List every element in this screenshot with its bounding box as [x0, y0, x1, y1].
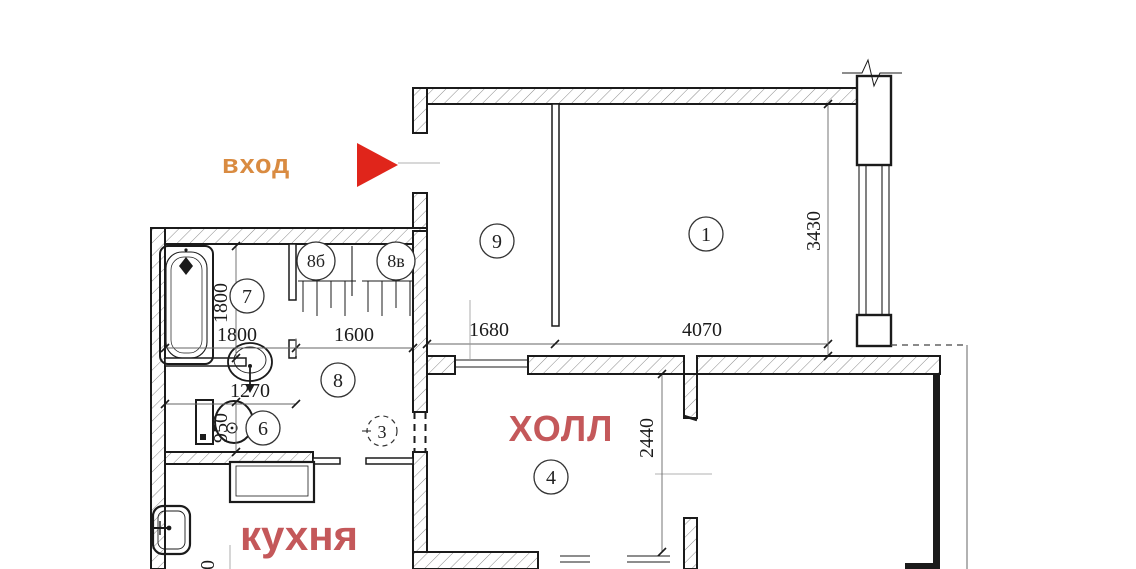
wall-hall-top-stub: [427, 356, 455, 374]
partition-room9-room1: [552, 104, 559, 326]
floor-plan-page: 1800 1600 1270 1800 950 1680 4070 3430: [0, 0, 1136, 569]
window-wall: [842, 60, 967, 569]
dim-bath-depth: 1800: [210, 283, 232, 323]
floor-plan-drawing: 1800 1600 1270 1800 950 1680 4070 3430: [0, 0, 1136, 569]
room-8-number: 8: [333, 370, 343, 392]
window-pier-bottom: [857, 315, 891, 346]
room-4-number: 4: [546, 467, 556, 489]
partition-corridor-kitchen-b: [366, 458, 413, 464]
window-pier-top: [857, 76, 891, 165]
dim-toilet-width: 1270: [230, 380, 270, 402]
wall-entrance-upper: [413, 88, 427, 133]
closet-8v-number: 8в: [387, 251, 405, 271]
wall-bottomright-stub: [905, 563, 940, 569]
wall-top-main: [413, 88, 860, 104]
closet-8b-number: 8б: [307, 251, 325, 271]
wall-room2-top: [697, 356, 940, 374]
wall-hall-bottom: [413, 552, 538, 569]
bathtub-icon: [160, 246, 213, 364]
wall-hall-top: [528, 356, 684, 374]
room-7-number: 7: [242, 286, 252, 308]
entrance-arrow-icon: [357, 143, 398, 187]
entrance-label: вход: [222, 149, 290, 179]
room-1-number: 1: [701, 224, 711, 246]
door-3-number: 3: [378, 422, 387, 442]
dim-toilet-depth: 950: [210, 413, 232, 443]
vent-shaft-icon: [230, 462, 314, 502]
hall-label: ХОЛЛ: [509, 408, 614, 449]
wall-hall-divider-lower: [684, 518, 697, 569]
wall-entrance-lower: [413, 193, 427, 231]
partition-bath-corridor-a: [289, 244, 296, 300]
dim-corridor-width: 1600: [334, 324, 374, 346]
wall-hall-divider-upper: [684, 374, 697, 418]
partition-corridor-kitchen-a: [313, 458, 340, 464]
dim-kitchen-partial: 0: [197, 560, 219, 569]
dim-room1-depth: 3430: [803, 211, 825, 251]
dim-hall-depth: 2440: [636, 418, 658, 458]
room-9-number: 9: [492, 231, 502, 253]
wall-leftwing-top: [151, 228, 427, 244]
dim-bath-width: 1800: [217, 324, 257, 346]
wall-right-outer: [933, 374, 940, 569]
kitchen-label: кухня: [240, 512, 358, 559]
dim-room1-width: 4070: [682, 319, 722, 341]
room-6-number: 6: [258, 418, 268, 440]
dim-room9-width: 1680: [469, 319, 509, 341]
